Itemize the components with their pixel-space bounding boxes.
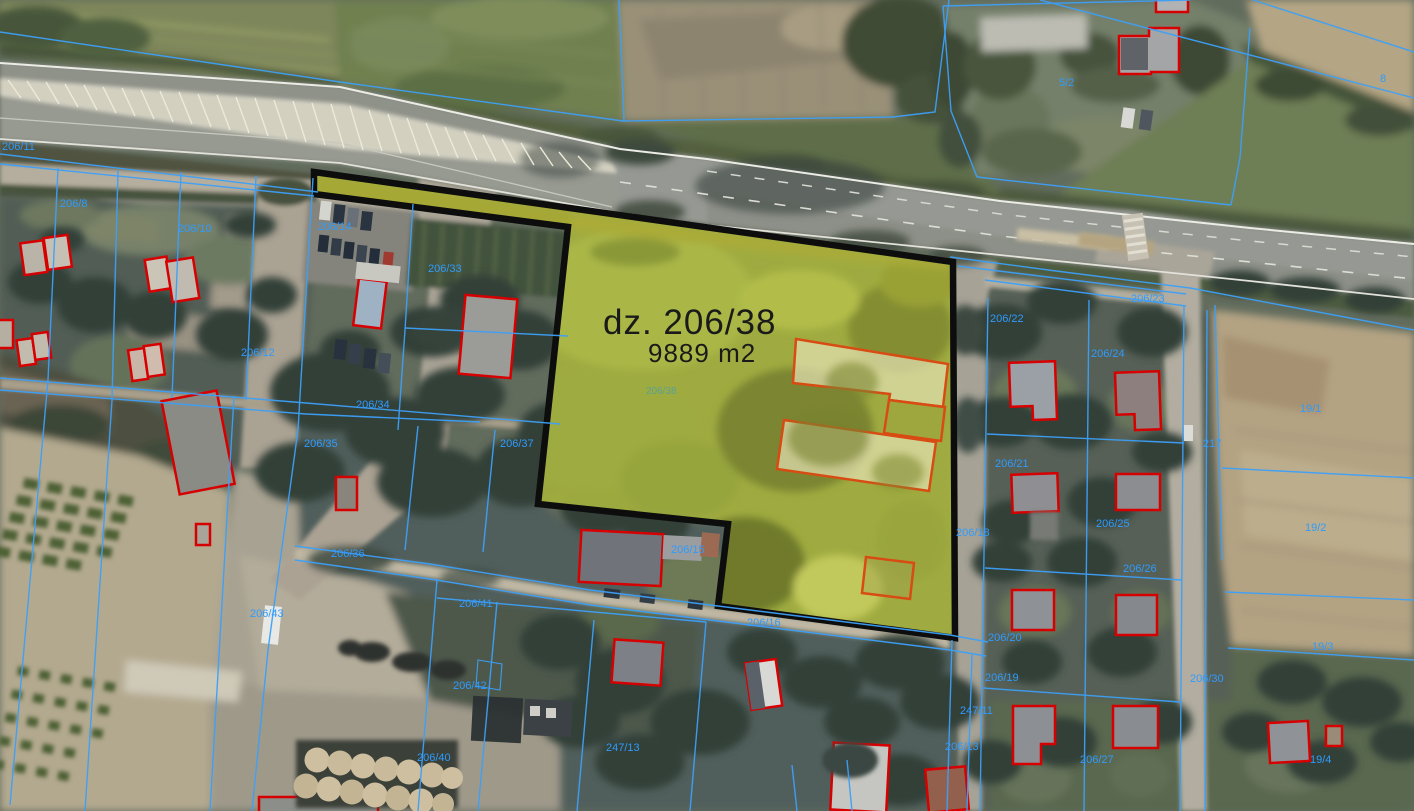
svg-text:206/42: 206/42	[453, 680, 487, 692]
svg-text:206/13: 206/13	[945, 741, 979, 753]
svg-text:206/23: 206/23	[1131, 293, 1165, 305]
svg-text:206/40: 206/40	[417, 752, 451, 764]
svg-text:217: 217	[1203, 438, 1221, 450]
svg-text:206/16: 206/16	[747, 617, 781, 629]
svg-text:206/36: 206/36	[331, 548, 365, 560]
svg-text:206/30: 206/30	[1190, 673, 1224, 685]
svg-text:9889 m2: 9889 m2	[648, 338, 756, 368]
svg-text:206/35: 206/35	[304, 438, 338, 450]
svg-text:19/3: 19/3	[1312, 641, 1333, 653]
svg-text:206/18: 206/18	[956, 527, 990, 539]
svg-text:206/38: 206/38	[646, 386, 677, 397]
svg-text:247/13: 247/13	[606, 742, 640, 754]
svg-text:206/37: 206/37	[500, 438, 534, 450]
svg-text:206/19: 206/19	[985, 672, 1019, 684]
svg-text:206/22: 206/22	[990, 313, 1024, 325]
svg-text:206/41: 206/41	[459, 598, 493, 610]
svg-text:5/2: 5/2	[1059, 77, 1074, 89]
svg-text:206/26: 206/26	[1123, 563, 1157, 575]
svg-text:206/8: 206/8	[60, 198, 88, 210]
svg-text:206/10: 206/10	[178, 223, 212, 235]
svg-text:206/12: 206/12	[241, 347, 275, 359]
svg-text:19/2: 19/2	[1305, 522, 1326, 534]
svg-text:206/15: 206/15	[671, 544, 705, 556]
svg-text:8: 8	[1380, 73, 1386, 85]
svg-text:dz. 206/38: dz. 206/38	[603, 303, 776, 342]
svg-text:206/11: 206/11	[2, 141, 35, 153]
svg-text:206/25: 206/25	[1096, 518, 1130, 530]
svg-text:247/11: 247/11	[960, 705, 993, 717]
svg-text:206/24: 206/24	[1091, 348, 1125, 360]
svg-text:19/4: 19/4	[1310, 754, 1331, 766]
svg-text:206/34: 206/34	[356, 399, 390, 411]
svg-text:206/27: 206/27	[1080, 754, 1114, 766]
svg-text:206/20: 206/20	[988, 632, 1022, 644]
svg-text:206/43: 206/43	[250, 608, 284, 620]
svg-text:206/14: 206/14	[318, 221, 352, 233]
svg-text:206/33: 206/33	[428, 263, 462, 275]
svg-text:19/1: 19/1	[1300, 403, 1321, 415]
svg-text:206/21: 206/21	[995, 458, 1029, 470]
